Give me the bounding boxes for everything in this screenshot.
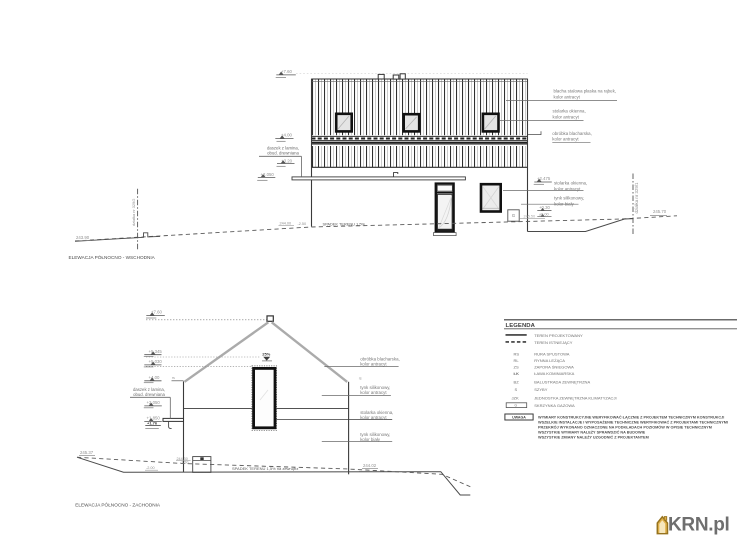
svg-text:blacha stalowa płaska na rąbek: blacha stalowa płaska na rąbek, — [554, 89, 616, 94]
svg-text:SKRZYNKA GAZOWA: SKRZYNKA GAZOWA — [534, 403, 575, 408]
svg-text:244.00: 244.00 — [280, 221, 292, 225]
svg-text:TEREN ISTNIEJĄCY: TEREN ISTNIEJĄCY — [534, 340, 573, 345]
svg-text:ELEWACJA PÓŁNOCNO - WSCHODNIA: ELEWACJA PÓŁNOCNO - WSCHODNIA — [69, 254, 156, 260]
svg-text:-1.50: -1.50 — [180, 461, 188, 465]
svg-text:tynk silikonowy,: tynk silikonowy, — [554, 196, 584, 201]
svg-text:stolarka okienna,: stolarka okienna, — [553, 109, 586, 114]
svg-text:SZYBY: SZYBY — [534, 387, 548, 392]
svg-text:działka nr 329/2: działka nr 329/2 — [131, 199, 136, 226]
svg-text:245.70: 245.70 — [653, 209, 667, 214]
svg-text:JZK: JZK — [512, 395, 519, 400]
svg-text:ELEWACJA PÓŁNOCNO - ZACHODNIA: ELEWACJA PÓŁNOCNO - ZACHODNIA — [75, 502, 161, 508]
svg-text:+0.30: +0.30 — [539, 205, 550, 210]
svg-text:ŁAWA KOMINIARSKA: ŁAWA KOMINIARSKA — [534, 371, 574, 376]
svg-text:RL: RL — [514, 358, 520, 363]
svg-text:stolarka okienna,: stolarka okienna, — [554, 181, 587, 186]
svg-text:rs: rs — [172, 376, 175, 380]
svg-text:-2.50: -2.50 — [298, 222, 307, 226]
svg-text:ZAPORA ŚNIEGOWA: ZAPORA ŚNIEGOWA — [534, 365, 574, 370]
svg-text:+5.030: +5.030 — [149, 359, 163, 364]
svg-text:obud. drewniana: obud. drewniana — [133, 392, 165, 397]
svg-text:WYMIARY KONSTRUKCYJNE WERYFIKO: WYMIARY KONSTRUKCYJNE WERYFIKOWAĆ ŁĄCZNI… — [538, 414, 724, 419]
svg-text:kolor antracyt: kolor antracyt — [554, 187, 581, 192]
svg-text:245.37: 245.37 — [80, 450, 94, 455]
svg-text:25%: 25% — [262, 351, 270, 356]
svg-text:WSZELKIE INSTALACJE I WYPOSAŻE: WSZELKIE INSTALACJE I WYPOSAŻENIE TECHNI… — [538, 419, 728, 424]
svg-text:S: S — [515, 387, 518, 392]
svg-text:-2.00: -2.00 — [146, 466, 155, 470]
svg-text:+5.345: +5.345 — [149, 349, 163, 354]
svg-text:ZS: ZS — [514, 365, 519, 370]
svg-text:244.02: 244.02 — [363, 463, 377, 468]
svg-text:245.50: 245.50 — [524, 215, 536, 219]
svg-text:LEGENDA: LEGENDA — [506, 323, 536, 329]
svg-text:kolor antracyt: kolor antracyt — [554, 95, 581, 100]
svg-text:SPADEK TERENU 1,5%: SPADEK TERENU 1,5% — [323, 222, 366, 227]
svg-text:RURA SPUSTOWA: RURA SPUSTOWA — [534, 351, 570, 356]
svg-text:UWAGA: UWAGA — [512, 416, 526, 420]
svg-text:TEREN PROJEKTOWANY: TEREN PROJEKTOWANY — [534, 333, 583, 338]
svg-text:±0.00: ±0.00 — [539, 212, 550, 217]
svg-text:RYNNA LEŻĄCA: RYNNA LEŻĄCA — [534, 358, 565, 363]
svg-text:WSZYSTKIE WYMIARY NALEŻY SPRAW: WSZYSTKIE WYMIARY NALEŻY SPRAWDZIĆ NA BU… — [538, 429, 646, 434]
svg-text:kolor antracyt: kolor antracyt — [360, 390, 387, 395]
svg-text:obud. drewniana: obud. drewniana — [267, 151, 299, 156]
svg-text:SPADEK TERENU 1,5% na zewnątrz: SPADEK TERENU 1,5% na zewnątrz — [232, 466, 298, 471]
svg-text:JEDNOSTKA ZEWNĘTRZNA KLIMATYZA: JEDNOSTKA ZEWNĘTRZNA KLIMATYZACJI — [534, 395, 616, 400]
svg-text:WSZYSTKIE ZMIANY NALEŻY UZGODN: WSZYSTKIE ZMIANY NALEŻY UZGODNIĆ Z PROJE… — [538, 434, 649, 439]
svg-text:+1.76: +1.76 — [147, 420, 158, 425]
svg-text:rs: rs — [359, 377, 362, 381]
svg-text:KRN.pl: KRN.pl — [668, 515, 730, 536]
svg-text:działka nr 329/1: działka nr 329/1 — [634, 182, 639, 214]
svg-text:kolor antracyt: kolor antracyt — [552, 136, 579, 141]
svg-text:ŁK: ŁK — [514, 371, 519, 376]
svg-text:kolor antracyt: kolor antracyt — [360, 361, 387, 366]
svg-text:RS: RS — [514, 351, 520, 356]
svg-text:kolor antracyt: kolor antracyt — [360, 415, 387, 420]
svg-text:obróbka blacharska,: obróbka blacharska, — [552, 131, 592, 136]
svg-text:BALUSTRADA ZEWNĘTRZNA: BALUSTRADA ZEWNĘTRZNA — [534, 380, 590, 385]
svg-text:BZ: BZ — [514, 380, 520, 385]
svg-text:G: G — [512, 213, 515, 218]
svg-text:+4.00: +4.00 — [149, 375, 160, 380]
svg-text:PRZEKRÓJ WYKONANO OZNACZONE NA: PRZEKRÓJ WYKONANO OZNACZONE NA PODKŁADAC… — [538, 424, 712, 429]
svg-text:kolor antracyt: kolor antracyt — [553, 115, 580, 120]
svg-text:+7.60: +7.60 — [281, 69, 292, 74]
svg-text:+2.050: +2.050 — [147, 400, 161, 405]
svg-text:243.90: 243.90 — [76, 235, 90, 240]
